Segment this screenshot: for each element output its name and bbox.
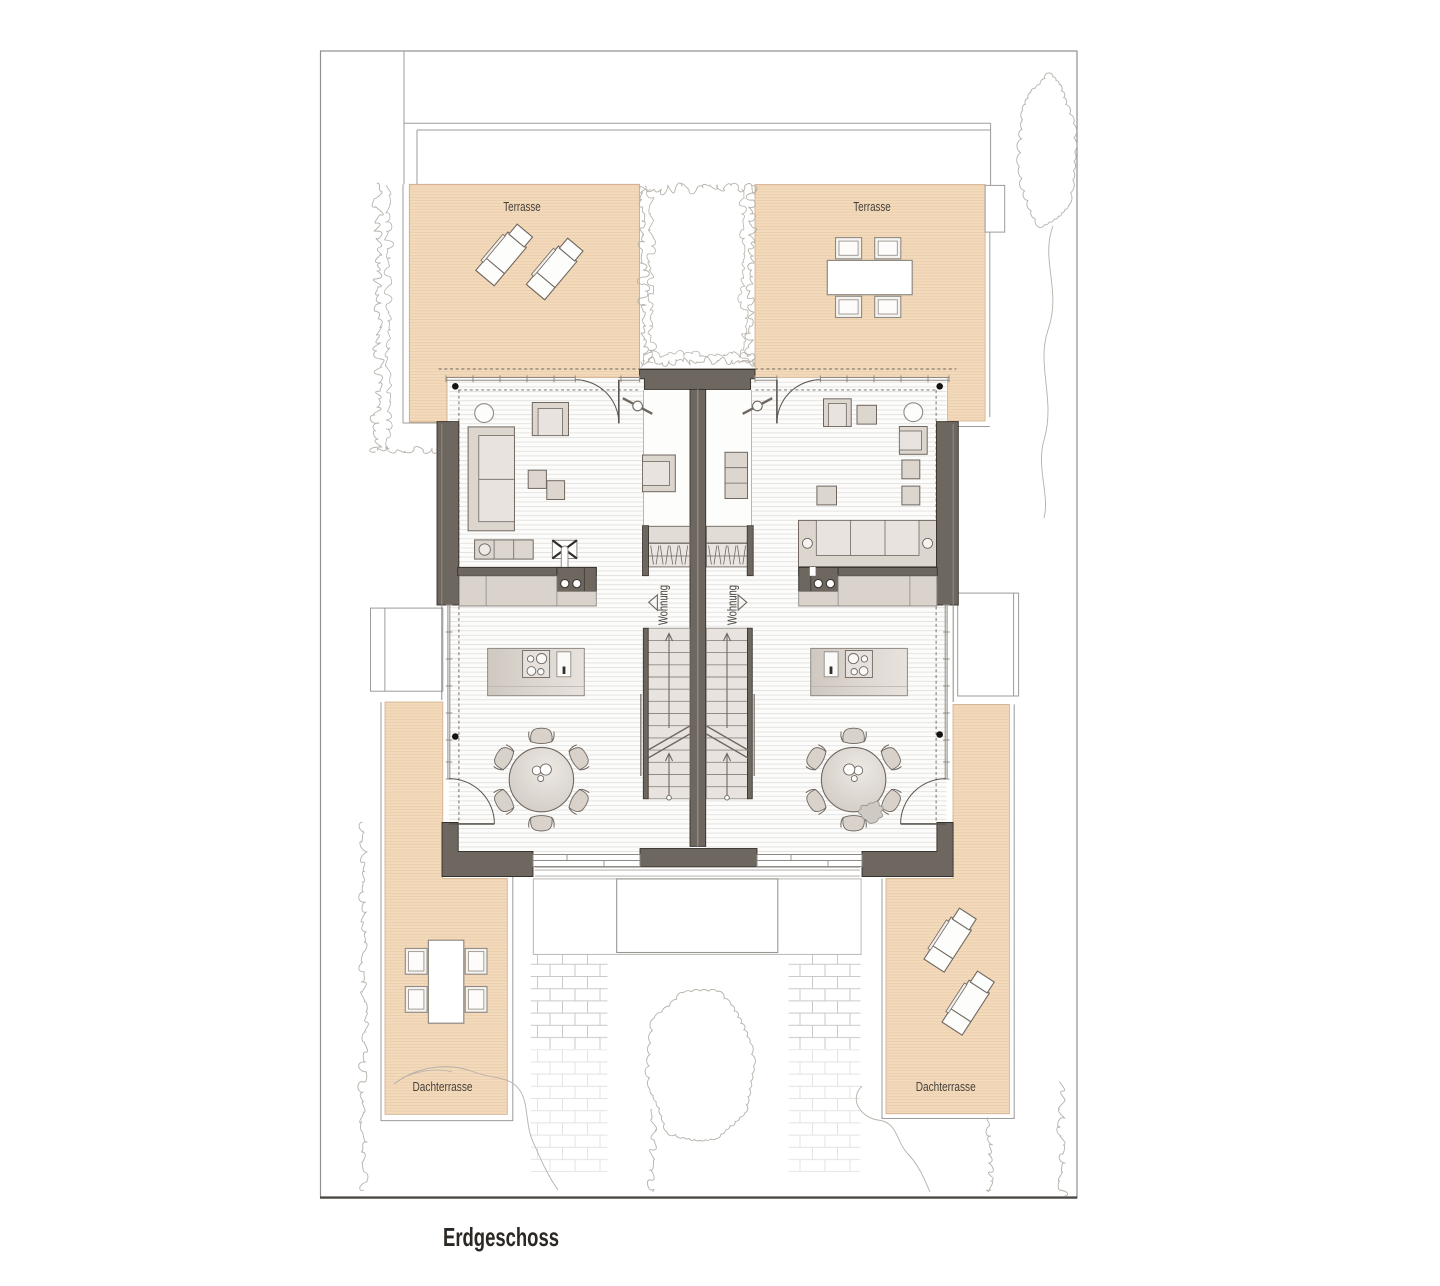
svg-text:Terrasse: Terrasse xyxy=(853,200,891,214)
svg-text:Dachterrasse: Dachterrasse xyxy=(916,1080,976,1094)
svg-text:Wohnung: Wohnung xyxy=(726,585,740,625)
svg-text:Terrasse: Terrasse xyxy=(503,200,541,214)
svg-text:Wohnung: Wohnung xyxy=(657,585,671,625)
svg-text:Erdgeschoss: Erdgeschoss xyxy=(443,1222,559,1252)
svg-text:Dachterrasse: Dachterrasse xyxy=(413,1080,473,1094)
